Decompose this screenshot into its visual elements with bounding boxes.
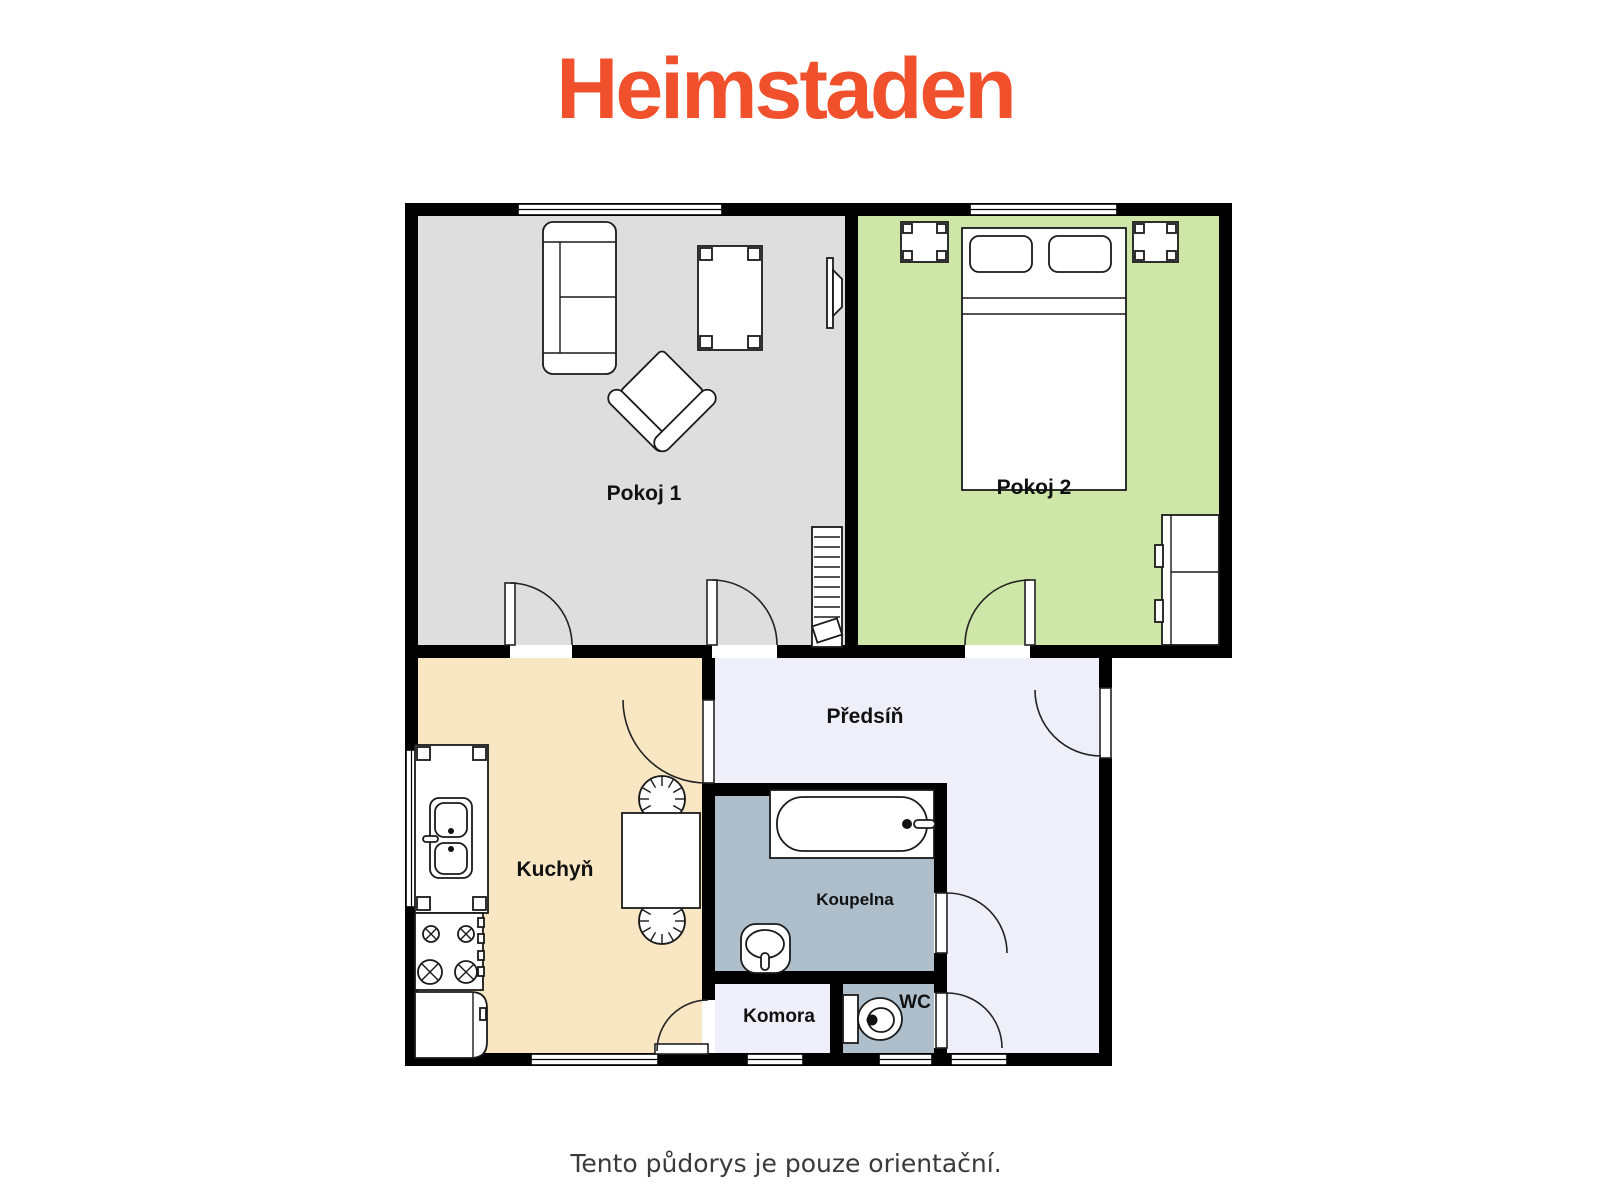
room-label-komora: Komora	[743, 1006, 815, 1027]
dining-table	[622, 813, 700, 908]
window-pokoj2	[970, 204, 1117, 215]
double-bed	[962, 228, 1126, 490]
window-komora	[747, 1054, 803, 1065]
room-label-pokoj2: Pokoj 2	[997, 476, 1072, 499]
window-kuchyn-bottom	[531, 1054, 658, 1065]
burner	[458, 926, 474, 942]
burner	[455, 961, 477, 983]
nightstand-right	[1133, 222, 1178, 262]
coffee-table	[698, 246, 762, 350]
room-label-pokoj1: Pokoj 1	[607, 482, 682, 505]
toilet	[843, 995, 902, 1043]
room-label-koupelna: Koupelna	[816, 890, 894, 909]
heimstaden-logo: Heimstaden	[556, 41, 1014, 137]
stove	[415, 913, 484, 990]
radiator-pokoj1	[812, 527, 842, 647]
disclaimer-text: Tento půdorys je pouze orientační.	[569, 1149, 1001, 1178]
burner	[423, 926, 439, 942]
washbasin	[741, 924, 790, 973]
room-label-predsin: Předsíň	[826, 705, 903, 728]
window-wc	[879, 1054, 932, 1065]
bathtub	[770, 790, 935, 858]
sofa	[543, 222, 616, 374]
room-pokoj1-floor	[405, 203, 858, 658]
window-predsin	[951, 1054, 1007, 1065]
fridge	[415, 992, 487, 1058]
room-label-wc: WC	[899, 992, 931, 1013]
wardrobe	[1155, 515, 1219, 645]
nightstand-left	[901, 222, 948, 262]
room-label-kuchyn: Kuchyň	[516, 858, 593, 881]
kitchen-sink	[423, 798, 472, 878]
burner	[418, 960, 442, 984]
floorplan-drawing: Pokoj 1 Pokoj 2 Kuchyň Předsíň Koupelna …	[0, 0, 1600, 1200]
window-pokoj1	[518, 204, 722, 215]
floorplan-page: Pokoj 1 Pokoj 2 Kuchyň Předsíň Koupelna …	[0, 0, 1600, 1200]
